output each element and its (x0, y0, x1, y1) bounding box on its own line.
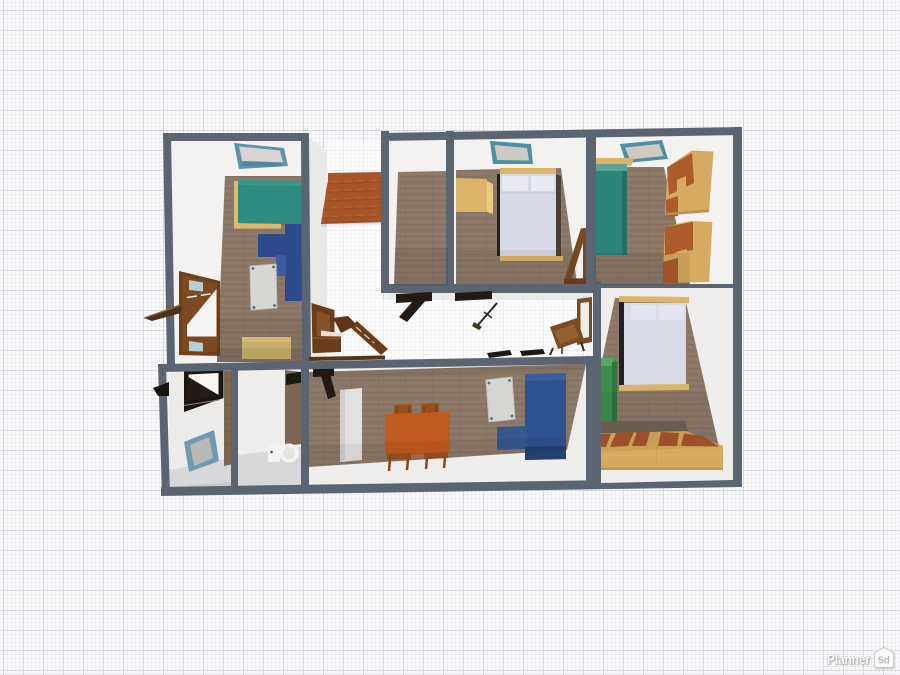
svg-text:Planner: Planner (827, 652, 871, 667)
svg-text:5d: 5d (878, 656, 890, 667)
